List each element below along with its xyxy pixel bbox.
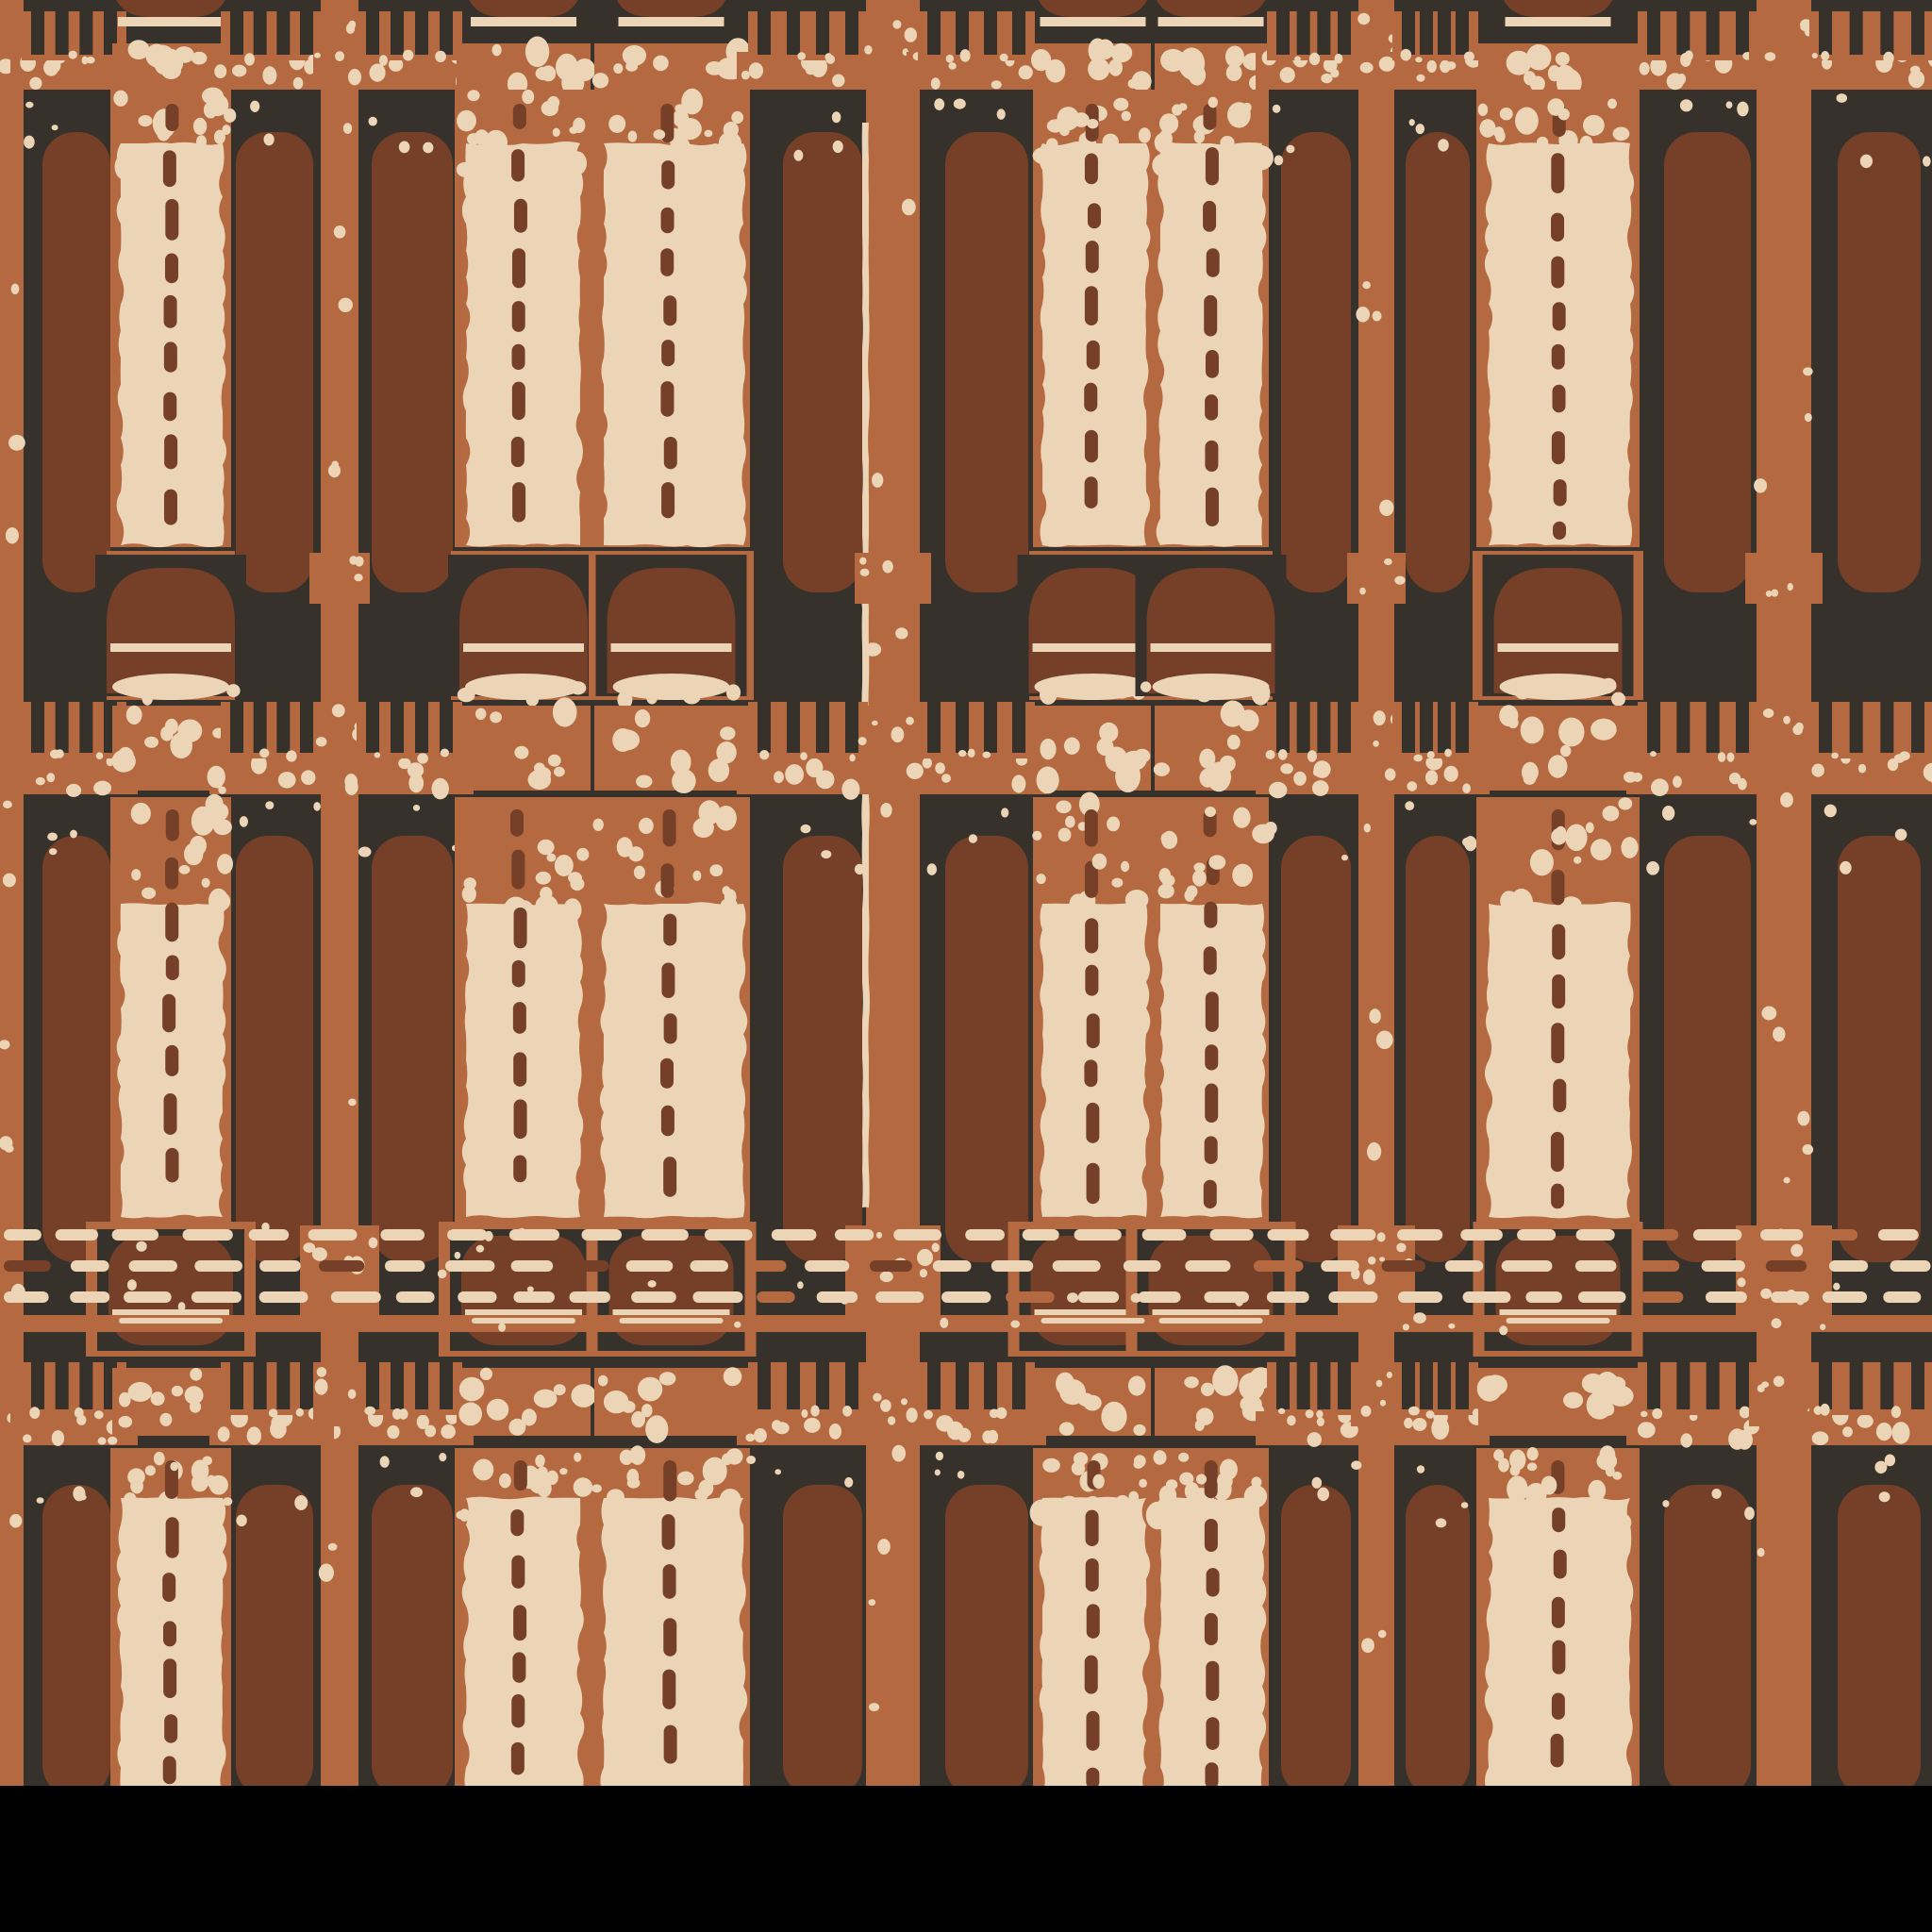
teeth-band (10, 0, 1932, 97)
dash-mark (1635, 1260, 1680, 1272)
terracotta-column (1358, 0, 1394, 1800)
speckle-dot (1201, 1383, 1214, 1396)
speckle-dot (332, 704, 345, 717)
dash-mark (1575, 1260, 1617, 1272)
stitch-dash (1551, 870, 1564, 905)
speckle-dot (991, 80, 1002, 89)
comb-slot (1911, 1362, 1924, 1409)
speckle-dot (1448, 1324, 1455, 1329)
speckle-dot (1811, 764, 1824, 777)
ruler-tick (1926, 1796, 1932, 1858)
stitch-dash (163, 1757, 176, 1785)
comb-slot (1647, 702, 1660, 753)
speckle-dot (859, 558, 866, 565)
speckle-dot (818, 774, 829, 786)
dash-mark (1138, 1291, 1180, 1303)
speckle-dot (1266, 750, 1275, 759)
speckle-dot (269, 1408, 278, 1417)
speckle-dot (1133, 1424, 1145, 1436)
stitch-dash (1086, 1711, 1099, 1751)
speckle-dot (482, 681, 498, 697)
comb-slot (1707, 1362, 1720, 1409)
comb-slot (79, 702, 92, 753)
speckle-dot (931, 77, 941, 90)
comb-base-strip (1626, 755, 1770, 794)
ruler-tick (629, 1796, 634, 1811)
speckle-dot (693, 818, 714, 838)
speckle-dot (880, 1399, 891, 1411)
stitch-dash (164, 434, 177, 469)
speckle-dot (1820, 1404, 1829, 1416)
stitch-dash (661, 863, 675, 898)
speckle-dot (1362, 281, 1371, 289)
speckle-dot (1462, 783, 1471, 793)
speckle-dot (1438, 139, 1449, 151)
speckle-dot (541, 65, 557, 81)
dash-mark (308, 1229, 358, 1241)
speckle-dot (313, 802, 321, 811)
speckle-dot (1556, 826, 1567, 840)
speckle-dot (648, 1280, 657, 1288)
speckle-dot (1524, 71, 1536, 85)
teeth-band (10, 1362, 1932, 1450)
speckle-dot (837, 1230, 846, 1240)
comb-slot (1276, 702, 1290, 753)
speckle-dot (1726, 101, 1733, 108)
stitch-dash (663, 1564, 676, 1599)
comb-slot (787, 11, 800, 55)
dash-mark (870, 1260, 912, 1272)
dash-mark (1078, 1291, 1119, 1303)
stitch-dash (1086, 1510, 1099, 1547)
speckle-dot (1803, 367, 1813, 375)
dash-mark (692, 1291, 742, 1303)
speckle-dot (1498, 1458, 1509, 1473)
stitch-dash (661, 208, 675, 233)
stitch-dash (663, 1460, 676, 1501)
ruler-tick (517, 1796, 524, 1824)
speckle-dot (113, 91, 127, 107)
speckle-dot (653, 56, 669, 72)
comb-slot (816, 1362, 829, 1409)
stitch-dash (1551, 1184, 1564, 1209)
stitch-dash (163, 1658, 176, 1698)
pill-shape (1838, 836, 1921, 1262)
comb-slot (1707, 702, 1720, 753)
ruler-tick (1706, 1796, 1712, 1824)
speckle-dot (1651, 778, 1669, 796)
pill-shape (1406, 1485, 1470, 1797)
comb-slot (1880, 702, 1893, 753)
speckle-dot (872, 473, 883, 488)
speckle-dot (25, 102, 33, 108)
speckle-dot (354, 574, 362, 581)
comb-slot (1438, 1362, 1451, 1409)
stitch-dash (664, 1013, 677, 1043)
speckle-dot (1226, 64, 1242, 81)
speckle-dot (438, 1270, 447, 1279)
comb-slot (415, 702, 428, 753)
speckle-dot (128, 40, 150, 59)
speckle-dot (1760, 1289, 1772, 1299)
speckle-dot (473, 1462, 486, 1477)
ruler-tick (590, 1796, 600, 1858)
stitch-dash (1552, 974, 1565, 1008)
speckle-dot (1874, 1461, 1887, 1474)
speckle-dot (1821, 51, 1829, 60)
comb-slot (758, 11, 771, 55)
speckle-dot (731, 111, 743, 124)
speckle-dot (410, 1487, 423, 1497)
speckle-dot (960, 49, 971, 62)
speckle-dot (1042, 1458, 1060, 1473)
speckle-dot (645, 1415, 668, 1443)
speckle-dot (131, 869, 141, 880)
speckle-dot (108, 1437, 117, 1445)
dash-mark (626, 1260, 674, 1272)
speckle-dot (724, 122, 739, 138)
stitch-dash (165, 1045, 178, 1076)
speckle-dot (142, 888, 156, 899)
speckle-dot (559, 1468, 567, 1474)
speckle-dot (1235, 1297, 1243, 1307)
speckle-dot (1612, 1472, 1622, 1480)
speckle-dot (1278, 1408, 1285, 1414)
stitch-dash (662, 1514, 675, 1550)
comb-slot (415, 11, 428, 55)
comb-slot (391, 702, 404, 753)
comb-slot (1911, 11, 1924, 55)
speckle-dot (1316, 1410, 1323, 1418)
stitch-dash (165, 254, 178, 284)
speckle-dot (1718, 752, 1725, 762)
speckle-dot (1464, 836, 1476, 851)
stitch-dash (511, 1556, 525, 1589)
speckle-dot (1161, 677, 1178, 691)
stitch-dash (663, 914, 676, 946)
stitch-dash (1205, 441, 1218, 472)
speckle-dot (892, 20, 901, 28)
stitch-dash (1086, 1103, 1099, 1143)
speckle-dot (907, 1407, 918, 1423)
ruler-tick (1111, 1796, 1118, 1824)
stitch-dash (660, 381, 674, 417)
speckle-dot (1560, 745, 1571, 757)
speckle-dot (1436, 1518, 1447, 1527)
dash-mark (933, 1260, 972, 1272)
speckle-dot (832, 111, 841, 123)
speckle-dot (49, 848, 57, 855)
ruler-number: 2 (282, 1872, 312, 1932)
speckle-dot (554, 1384, 566, 1395)
speckle-dot (1001, 808, 1008, 817)
speckle-dot (1763, 708, 1774, 718)
comb-slot (254, 11, 267, 55)
stitch-dash (1552, 1692, 1565, 1719)
speckle-dot (1196, 1474, 1207, 1485)
speckle-dot (1178, 47, 1205, 79)
speckle-dot (840, 1292, 849, 1304)
stitch-dash (663, 1157, 676, 1197)
speckle-dot (1409, 119, 1415, 125)
dome-top-pool (1158, 17, 1264, 26)
comb-slot (391, 1362, 404, 1409)
speckle-dot (1232, 56, 1242, 65)
speckle-dot (459, 1377, 485, 1402)
stitch-dash (662, 1670, 675, 1709)
speckle-dot (547, 96, 559, 109)
speckle-dot (1196, 1407, 1214, 1425)
dash-mark (1006, 1291, 1055, 1303)
speckle-dot (1662, 806, 1674, 821)
dash-mark (568, 1260, 609, 1272)
dash-mark (249, 1229, 290, 1241)
speckle-dot (1222, 773, 1231, 782)
speckle-dot (623, 45, 646, 66)
speckle-dot (1108, 59, 1123, 76)
speckle-dot (1363, 1270, 1375, 1285)
stitch-dash (512, 1652, 525, 1682)
speckle-dot (1040, 739, 1056, 759)
dash-mark (458, 1291, 496, 1303)
speckle-dot (1161, 874, 1174, 887)
speckle-dot (997, 108, 1006, 119)
speckle-dot (1220, 136, 1234, 149)
dash-mark (4, 1229, 42, 1241)
stitch-dash (513, 1052, 526, 1086)
speckle-dot (1737, 1430, 1753, 1450)
ruler-tick (292, 1796, 303, 1858)
speckle-dot (628, 131, 638, 142)
speckle-dot (1727, 753, 1735, 762)
speckle-dot (576, 848, 589, 861)
dome-stripe (1498, 643, 1619, 652)
speckle-dot (316, 737, 327, 746)
ruler-unit-label: in (9, 1872, 58, 1932)
dash-mark (750, 1260, 787, 1272)
speckle-dot (1413, 755, 1423, 762)
speckle-dot (797, 52, 806, 60)
speckle-dot (24, 136, 35, 149)
speckle-dot (1273, 105, 1281, 113)
speckle-dot (1010, 1321, 1020, 1328)
pill-shape (945, 132, 1028, 592)
ruler-tick (1260, 1796, 1267, 1824)
stitch-dash (1552, 431, 1565, 464)
ruler-tick (1629, 1796, 1640, 1858)
comb-slot (1420, 1362, 1433, 1409)
stitch-dash (165, 199, 178, 241)
stitch-dash (165, 903, 178, 942)
stitch-dash (510, 809, 524, 837)
speckle-dot (52, 1430, 64, 1446)
dash-mark (1706, 1291, 1747, 1303)
speckle-dot (1404, 1418, 1413, 1428)
speckle-dot (1797, 1111, 1809, 1126)
dash-mark (192, 1291, 241, 1303)
speckle-dot (548, 755, 561, 767)
speckle-dot (1361, 1638, 1374, 1653)
dash-mark (1525, 1291, 1562, 1303)
dash-mark (941, 1291, 991, 1303)
stitch-dash (1551, 257, 1564, 289)
stitch-dash (1085, 965, 1098, 996)
speckle-dot (1618, 797, 1632, 809)
speckle-dot (151, 1391, 165, 1406)
speckle-dot (1312, 780, 1329, 796)
speckle-dot (592, 73, 608, 88)
speckle-dot (458, 1403, 482, 1426)
pill-shape (1281, 836, 1351, 1262)
speckle-dot (1837, 93, 1848, 103)
speckle-dot (1857, 1414, 1874, 1427)
comb-slot (1736, 11, 1749, 55)
speckle-dot (724, 1367, 742, 1386)
comb-slot (1850, 702, 1863, 753)
speckle-dot (1380, 1400, 1386, 1407)
dash-mark (1517, 1229, 1556, 1241)
speckle-dot (1773, 1026, 1785, 1041)
speckle-dot (1227, 735, 1241, 750)
stitch-dash (514, 1099, 527, 1139)
speckle-dot (130, 1478, 143, 1493)
dash-mark (1640, 1291, 1683, 1303)
speckle-dot (408, 774, 424, 792)
comb-slot (79, 11, 92, 55)
comb-slot (1402, 702, 1415, 753)
speckle-dot (759, 750, 769, 759)
speckle-dot (628, 846, 643, 861)
speckle-dot (484, 1231, 492, 1241)
speckle-dot (1680, 99, 1692, 111)
stitch-dash (1085, 286, 1098, 325)
stitch-dash (1084, 383, 1097, 412)
speckle-dot (1824, 805, 1837, 818)
speckle-dot (118, 747, 134, 765)
speckle-dot (226, 684, 240, 697)
stitch-dash (1206, 147, 1219, 185)
dash-mark (1878, 1229, 1919, 1241)
speckle-dot (1583, 115, 1605, 136)
speckle-dot (570, 877, 584, 891)
speckle-dot (593, 819, 604, 831)
dash-mark (1890, 1260, 1930, 1272)
dash-mark (1330, 1229, 1375, 1241)
speckle-dot (1158, 130, 1173, 148)
stitch-dash (1206, 488, 1219, 526)
speckle-dot (1194, 675, 1215, 702)
speckle-dot (1527, 1447, 1539, 1460)
comb-slot (984, 702, 997, 753)
speckle-dot (1621, 837, 1638, 858)
speckle-dot (1780, 792, 1793, 808)
speckle-dot (882, 560, 892, 574)
comb-slot (415, 1362, 428, 1409)
comb-slot (1420, 11, 1433, 55)
dash-mark (1328, 1291, 1377, 1303)
speckle-dot (262, 66, 276, 84)
comb-slot (1276, 11, 1290, 55)
speckle-dot (1783, 716, 1790, 724)
speckle-dot (1377, 1232, 1386, 1241)
dash-mark (1267, 1229, 1308, 1241)
speckle-dot (880, 1272, 893, 1283)
speckle-dot (1673, 775, 1682, 788)
ruler-tick (369, 1796, 375, 1824)
speckle-dot (1208, 855, 1225, 869)
speckle-dot (754, 1428, 767, 1442)
speckle-dot (435, 51, 446, 62)
comb-slot (1012, 11, 1025, 55)
speckle-dot (1074, 681, 1091, 696)
speckle-dot (895, 627, 908, 639)
speckle-dot (537, 1467, 548, 1479)
speckle-dot (519, 1228, 525, 1234)
stripe-highlight (119, 1318, 223, 1324)
dash-mark (183, 1229, 233, 1241)
dash-mark (1883, 1291, 1921, 1303)
speckle-dot (1317, 1417, 1324, 1426)
speckle-dot (1356, 307, 1370, 323)
speckle-dot (499, 1474, 511, 1489)
speckle-dot (170, 732, 192, 758)
comb-slot (1676, 1362, 1690, 1409)
speckle-dot (1361, 1406, 1372, 1417)
speckle-dot (722, 1454, 732, 1466)
dash-mark (396, 1291, 435, 1303)
speckle-dot (1766, 591, 1773, 597)
comb-slot (56, 1362, 69, 1409)
comb-slot (1338, 11, 1351, 55)
ruler-number: 13 (1902, 1872, 1932, 1932)
stitch-dash (1205, 1762, 1218, 1789)
pill-shape (783, 836, 862, 1262)
speckle-dot (793, 150, 803, 161)
speckle-dot (1842, 1426, 1853, 1437)
speckle-dot (93, 781, 111, 796)
comb-slot (1736, 702, 1749, 753)
speckle-dot (312, 1247, 327, 1260)
comb-slot (1819, 1362, 1832, 1409)
speckle-dot (236, 1515, 246, 1527)
dash-mark (56, 1229, 98, 1241)
speckle-dot (785, 764, 804, 785)
dome-top-pool (471, 17, 576, 26)
stitch-dash (163, 150, 176, 187)
comb-slot (927, 702, 941, 753)
stitch-dash (513, 1002, 526, 1034)
dash-mark (1074, 1229, 1122, 1241)
terracotta-column (1757, 0, 1811, 1800)
speckle-dot (608, 115, 625, 133)
speckle-dot (8, 435, 25, 451)
speckle-dot (1161, 833, 1171, 844)
speckle-dot (1123, 751, 1147, 771)
stitch-dash (1205, 1044, 1218, 1070)
pill-shape (372, 1485, 453, 1797)
speckle-dot (1541, 1476, 1557, 1495)
speckle-dot (1385, 768, 1396, 780)
speckle-dot (1307, 750, 1317, 762)
speckle-dot (1479, 119, 1495, 138)
speckle-dot (1833, 1283, 1840, 1291)
stitch-dash (1553, 522, 1566, 540)
stitch-dash (511, 1742, 525, 1775)
comb-slot (984, 11, 997, 55)
ruler-tick (109, 1796, 114, 1811)
comb-slot (1317, 11, 1330, 55)
speckle-dot (877, 1539, 891, 1555)
